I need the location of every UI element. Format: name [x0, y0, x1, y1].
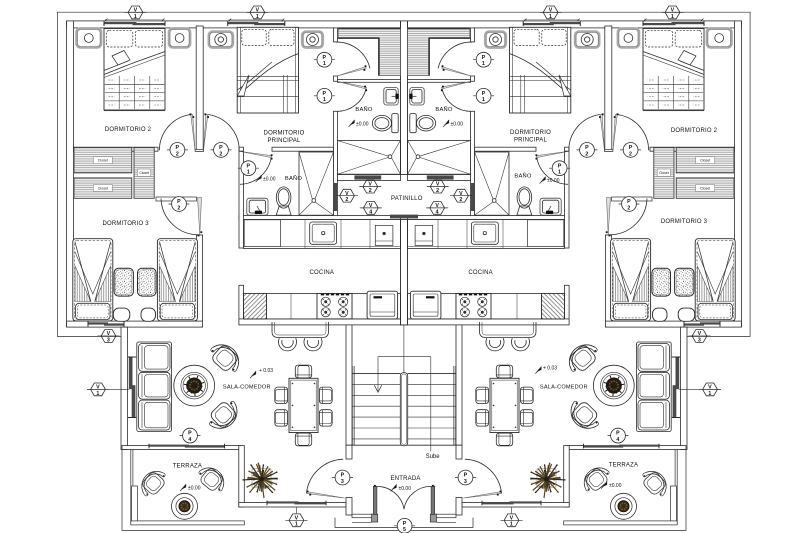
svg-text:Closet: Closet — [98, 159, 108, 163]
svg-text:DORMITORIO: DORMITORIO — [510, 130, 551, 136]
svg-text:1: 1 — [482, 97, 485, 103]
svg-text:3: 3 — [107, 337, 110, 343]
svg-text:Closet: Closet — [659, 171, 669, 175]
svg-text:BAÑO: BAÑO — [514, 173, 532, 180]
svg-text:P: P — [585, 145, 589, 151]
svg-text:DORMITORIO: DORMITORIO — [264, 131, 305, 137]
svg-text:V: V — [107, 331, 111, 337]
svg-text:±0.00: ±0.00 — [356, 121, 369, 127]
svg-text:1: 1 — [134, 14, 137, 20]
svg-text:P: P — [482, 55, 486, 61]
svg-text:TERRAZA: TERRAZA — [609, 463, 638, 469]
svg-text:P: P — [323, 55, 327, 61]
svg-text:P: P — [177, 199, 181, 205]
svg-text:1: 1 — [510, 522, 513, 528]
svg-text:+ 0.03: + 0.03 — [259, 368, 273, 374]
svg-text:2: 2 — [629, 151, 632, 157]
svg-text:3: 3 — [698, 337, 701, 343]
svg-text:±0.00: ±0.00 — [399, 486, 412, 492]
svg-text:3: 3 — [464, 479, 467, 485]
svg-text:BAÑO: BAÑO — [435, 106, 453, 113]
svg-text:P: P — [341, 473, 345, 479]
svg-text:P: P — [176, 145, 180, 151]
svg-text:2: 2 — [459, 197, 462, 203]
svg-text:ENTRADA: ENTRADA — [391, 476, 421, 482]
svg-text:P: P — [558, 163, 562, 169]
svg-text:P: P — [247, 163, 251, 169]
svg-text:4: 4 — [188, 437, 191, 443]
svg-text:1: 1 — [549, 14, 552, 20]
svg-text:2: 2 — [369, 188, 372, 194]
svg-text:BAÑO: BAÑO — [355, 106, 373, 113]
svg-text:PRINCIPAL: PRINCIPAL — [514, 137, 547, 143]
svg-text:1: 1 — [482, 61, 485, 67]
svg-text:1: 1 — [708, 391, 711, 397]
svg-text:SALA-COMEDOR: SALA-COMEDOR — [540, 385, 588, 391]
svg-text:1: 1 — [256, 14, 259, 20]
svg-text:V: V — [459, 191, 463, 197]
svg-text:V: V — [134, 8, 138, 14]
svg-text:V: V — [256, 8, 260, 14]
svg-text:DORMITORIO 2: DORMITORIO 2 — [671, 128, 718, 134]
svg-text:V: V — [435, 203, 439, 209]
svg-text:P: P — [403, 521, 407, 527]
svg-text:4: 4 — [436, 209, 439, 215]
svg-text:V: V — [345, 191, 349, 197]
svg-text:V: V — [436, 182, 440, 188]
svg-text:1: 1 — [671, 14, 674, 20]
svg-text:V: V — [369, 203, 373, 209]
svg-text:1: 1 — [295, 522, 298, 528]
svg-text:V: V — [96, 385, 100, 391]
svg-text:±0.00: ±0.00 — [451, 121, 464, 127]
svg-text:4: 4 — [616, 437, 619, 443]
svg-text:DORMITORIO 3: DORMITORIO 3 — [102, 221, 149, 227]
svg-text:4: 4 — [369, 209, 372, 215]
svg-text:2: 2 — [627, 205, 630, 211]
svg-text:SALA-COMEDOR: SALA-COMEDOR — [223, 385, 271, 391]
svg-text:±0.00: ±0.00 — [263, 177, 276, 183]
svg-text:P: P — [188, 431, 192, 437]
svg-text:V: V — [368, 182, 372, 188]
svg-text:P: P — [616, 431, 620, 437]
svg-text:1: 1 — [323, 97, 326, 103]
svg-text:1: 1 — [558, 170, 561, 176]
svg-text:±0.00: ±0.00 — [609, 483, 622, 489]
svg-text:P: P — [629, 145, 633, 151]
svg-text:±0.00: ±0.00 — [188, 486, 201, 492]
svg-text:Closet: Closet — [98, 187, 108, 191]
svg-text:2: 2 — [219, 151, 222, 157]
svg-text:1: 1 — [96, 391, 99, 397]
svg-text:1: 1 — [247, 170, 250, 176]
svg-text:P: P — [627, 199, 631, 205]
svg-text:P: P — [219, 145, 223, 151]
svg-text:P: P — [482, 91, 486, 97]
svg-text:PRINCIPAL: PRINCIPAL — [267, 138, 300, 144]
svg-text:2: 2 — [585, 151, 588, 157]
svg-text:DORMITORIO 2: DORMITORIO 2 — [105, 127, 152, 133]
svg-text:V: V — [671, 8, 675, 14]
svg-text:P: P — [464, 473, 468, 479]
svg-text:Closet: Closet — [139, 171, 149, 175]
svg-text:2: 2 — [436, 188, 439, 194]
svg-text:V: V — [510, 515, 514, 521]
svg-text:V: V — [698, 331, 702, 337]
svg-text:3: 3 — [341, 479, 344, 485]
svg-text:+ 0.03: + 0.03 — [543, 366, 557, 372]
svg-text:BAÑO: BAÑO — [285, 175, 303, 182]
svg-text:5: 5 — [403, 527, 406, 533]
svg-text:COCINA: COCINA — [468, 270, 493, 276]
svg-text:Closet: Closet — [700, 187, 710, 191]
svg-text:V: V — [708, 385, 712, 391]
svg-text:2: 2 — [177, 205, 180, 211]
svg-text:PATINILLO: PATINILLO — [391, 196, 423, 202]
svg-text:2: 2 — [176, 151, 179, 157]
svg-text:1: 1 — [323, 61, 326, 67]
svg-text:V: V — [295, 515, 299, 521]
svg-text:±0.00: ±0.00 — [547, 178, 560, 184]
svg-text:COCINA: COCINA — [310, 270, 335, 276]
svg-text:Closet: Closet — [700, 159, 710, 163]
svg-text:Sube: Sube — [426, 454, 441, 460]
svg-text:2: 2 — [345, 197, 348, 203]
svg-text:TERRAZA: TERRAZA — [173, 464, 202, 470]
svg-text:V: V — [549, 8, 553, 14]
svg-text:DORMITORIO 3: DORMITORIO 3 — [661, 219, 708, 225]
svg-text:P: P — [323, 91, 327, 97]
